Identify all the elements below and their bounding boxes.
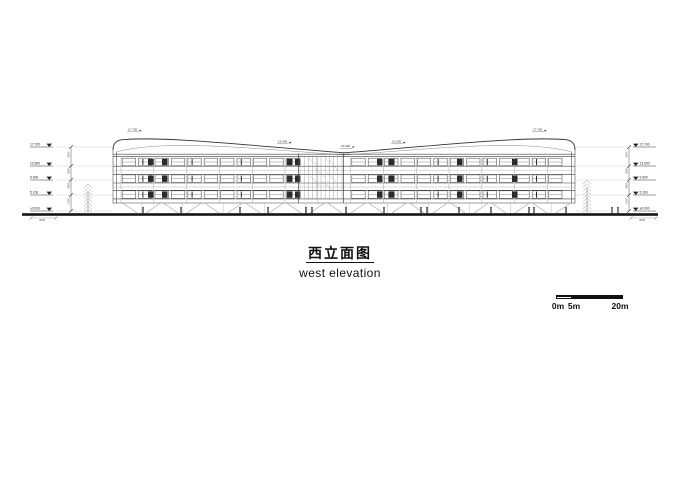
level-value: 5.100 (640, 191, 648, 195)
person-head (305, 207, 307, 209)
ground-line (22, 213, 658, 216)
level-value: ±0.000 (30, 207, 40, 211)
level-flag-triangle (47, 163, 53, 166)
level-value: ±0.000 (640, 207, 650, 211)
dark-glazing-panel (377, 159, 383, 165)
tree-branch (88, 191, 92, 195)
annotation-flag (289, 142, 291, 144)
pilotis-brace (474, 203, 488, 213)
dark-glazing-panel (148, 176, 154, 182)
dimension-value: 3600 (625, 168, 629, 174)
tree-branch (84, 202, 88, 206)
dark-glazing-panel (377, 176, 383, 182)
tree-branch (587, 205, 591, 209)
pilotis-brace (246, 203, 260, 213)
person-head (267, 207, 269, 209)
scale-bar-graphic (556, 295, 623, 300)
building-elevation (22, 139, 658, 216)
tree-branch (583, 180, 587, 184)
dark-glazing-panel (162, 191, 168, 197)
dark-glazing-panel (295, 159, 301, 165)
scale-bar-segment-5-20 (572, 296, 623, 299)
drawing-title-cn: 西立面图 (306, 246, 374, 263)
tree-branch (587, 191, 591, 195)
atrium-sketch-line (308, 158, 318, 166)
person-head (383, 207, 385, 209)
pilotis-brace (328, 203, 342, 213)
roof-annotation: 15.600 (392, 140, 402, 144)
pilotis-brace (451, 203, 465, 213)
level-value: 9.900 (640, 176, 648, 180)
left-edge (113, 150, 117, 203)
tree-branch (88, 184, 92, 188)
atrium-sketch-line (310, 176, 320, 186)
scale-bar-labels: 0m 5m 20m (556, 301, 623, 313)
person-head (490, 207, 492, 209)
atrium-sketch-line (315, 168, 325, 177)
dimension-value: 5100 (625, 198, 629, 204)
tree-branch (84, 184, 88, 188)
person-head (611, 207, 613, 209)
tree-branch (583, 191, 587, 195)
person-head (617, 207, 619, 209)
dark-glazing-panel (162, 159, 168, 165)
level-value: 5.100 (30, 191, 38, 195)
level-value: 13.500 (30, 162, 40, 166)
tree-branch (84, 188, 88, 192)
person-head (565, 207, 567, 209)
dark-glazing-panel (389, 191, 395, 197)
person-head (142, 207, 144, 209)
pilotis-brace (369, 203, 383, 213)
sheet: 17.700420013.50036009.90048005.1005100±0… (0, 0, 680, 481)
tree-branch (583, 184, 587, 188)
tree-branch (88, 198, 92, 202)
dark-glazing-panel (512, 191, 518, 197)
dark-glazing-panel (457, 159, 463, 165)
person-head (533, 207, 535, 209)
pilotis-brace (556, 203, 570, 213)
person-head (458, 207, 460, 209)
annotation-flag (544, 130, 546, 132)
roof-annotation: 17.700 (533, 128, 543, 132)
dimension-value: 4800 (625, 182, 629, 188)
atrium-sketch-line (330, 160, 338, 171)
dark-glazing-panel (377, 191, 383, 197)
scale-label-0m: 0m (552, 301, 564, 311)
tree-branch (88, 195, 92, 199)
tree-branch (84, 195, 88, 199)
level-flag-triangle (633, 177, 639, 180)
level-flag-triangle (633, 144, 639, 147)
tree-branch (587, 187, 591, 191)
level-flag-triangle (633, 192, 639, 195)
pilotis-brace (392, 203, 406, 213)
annotation-flag (352, 147, 354, 149)
tree-branch (587, 202, 591, 206)
tree-branch (587, 198, 591, 202)
atrium-sketch-line (322, 181, 332, 190)
pilotis-brace (205, 203, 219, 213)
dimension-value: 3600 (67, 168, 71, 174)
tree-branch (84, 198, 88, 202)
annotation-flag (139, 130, 141, 132)
tree-branch (583, 187, 587, 191)
dark-glazing-panel (295, 191, 301, 197)
level-flag-triangle (47, 208, 53, 211)
roof-annotation: 17.700 (128, 128, 138, 132)
tree-branch (88, 202, 92, 206)
pilotis-brace (269, 203, 283, 213)
dark-glazing-panel (287, 191, 293, 197)
dimension-value: 4800 (67, 182, 71, 188)
pilotis-brace (187, 203, 201, 213)
right-edge (572, 150, 576, 203)
dimension-value: 4200 (625, 151, 629, 157)
scale-label-20m: 20m (611, 301, 628, 311)
ground-dim-value: 4500 (639, 218, 646, 222)
person-head (426, 207, 428, 209)
pilotis-brace (433, 203, 447, 213)
person-head (420, 207, 422, 209)
person-head (345, 207, 347, 209)
person-head (528, 207, 530, 209)
drawing-title-en: west elevation (0, 266, 680, 280)
level-flag-triangle (633, 208, 639, 211)
ground-dim-value: 4500 (39, 218, 46, 222)
pilotis-brace (533, 203, 547, 213)
pilotis-brace (146, 203, 160, 213)
level-value: 17.700 (640, 143, 650, 147)
dark-glazing-panel (148, 159, 154, 165)
level-flag-triangle (47, 144, 53, 147)
level-flag-triangle (633, 163, 639, 166)
pilotis-brace (492, 203, 506, 213)
atrium-sketch-line (327, 172, 336, 182)
central-atrium-glazing (299, 154, 344, 204)
atrium-sketch-line (322, 154, 330, 163)
level-flag-triangle (47, 192, 53, 195)
person-head (239, 207, 241, 209)
dark-glazing-panel (457, 191, 463, 197)
dark-glazing-panel (389, 159, 395, 165)
level-value: 13.500 (640, 162, 650, 166)
dark-glazing-panel (148, 191, 154, 197)
dimension-value: 4200 (67, 151, 71, 157)
level-value: 17.700 (30, 143, 40, 147)
dark-glazing-panel (295, 176, 301, 182)
tree-branch (88, 206, 92, 210)
tree-branch (583, 198, 587, 202)
tree-branch (84, 191, 88, 195)
dark-glazing-panel (389, 176, 395, 182)
scale-bar: 0m 5m 20m (556, 295, 626, 313)
elevation-drawing: 17.700420013.50036009.90048005.1005100±0… (0, 0, 680, 481)
dimension-value: 5100 (67, 198, 71, 204)
dark-glazing-panel (457, 176, 463, 182)
tree-branch (88, 188, 92, 192)
roof-annotation: 15.600 (341, 144, 351, 148)
pilotis-brace (164, 203, 178, 213)
ground-dimension-notes: 45004500 (30, 217, 658, 223)
tree-branch (84, 206, 88, 210)
annotation-flag (403, 142, 405, 144)
dark-glazing-panel (287, 159, 293, 165)
level-value: 9.900 (30, 176, 38, 180)
roof-annotations: 17.70015.60015.60015.60017.700 (127, 128, 546, 149)
roof-annotation: 15.600 (278, 140, 288, 144)
scale-bar-segment-0-5 (556, 296, 572, 299)
tree-branch (583, 202, 587, 206)
pilotis-brace (410, 203, 424, 213)
pilotis-brace (351, 203, 365, 213)
tree-branch (587, 180, 591, 184)
pilotis-brace (515, 203, 529, 213)
tree-branch (583, 205, 587, 209)
pilotis-brace (287, 203, 301, 213)
person-head (180, 207, 182, 209)
dark-glazing-panel (162, 176, 168, 182)
level-flag-triangle (47, 177, 53, 180)
scale-label-5m: 5m (568, 301, 580, 311)
dark-glazing-panel (512, 159, 518, 165)
level-markers-left: 17.700420013.50036009.90048005.1005100±0… (30, 143, 113, 213)
dark-glazing-panel (512, 176, 518, 182)
tree-branch (587, 184, 591, 188)
dark-glazing-panel (287, 176, 293, 182)
pilotis-brace (123, 203, 137, 213)
title-block: 西立面图 west elevation (0, 245, 680, 280)
person-head (311, 207, 313, 209)
people-figures (142, 207, 619, 213)
